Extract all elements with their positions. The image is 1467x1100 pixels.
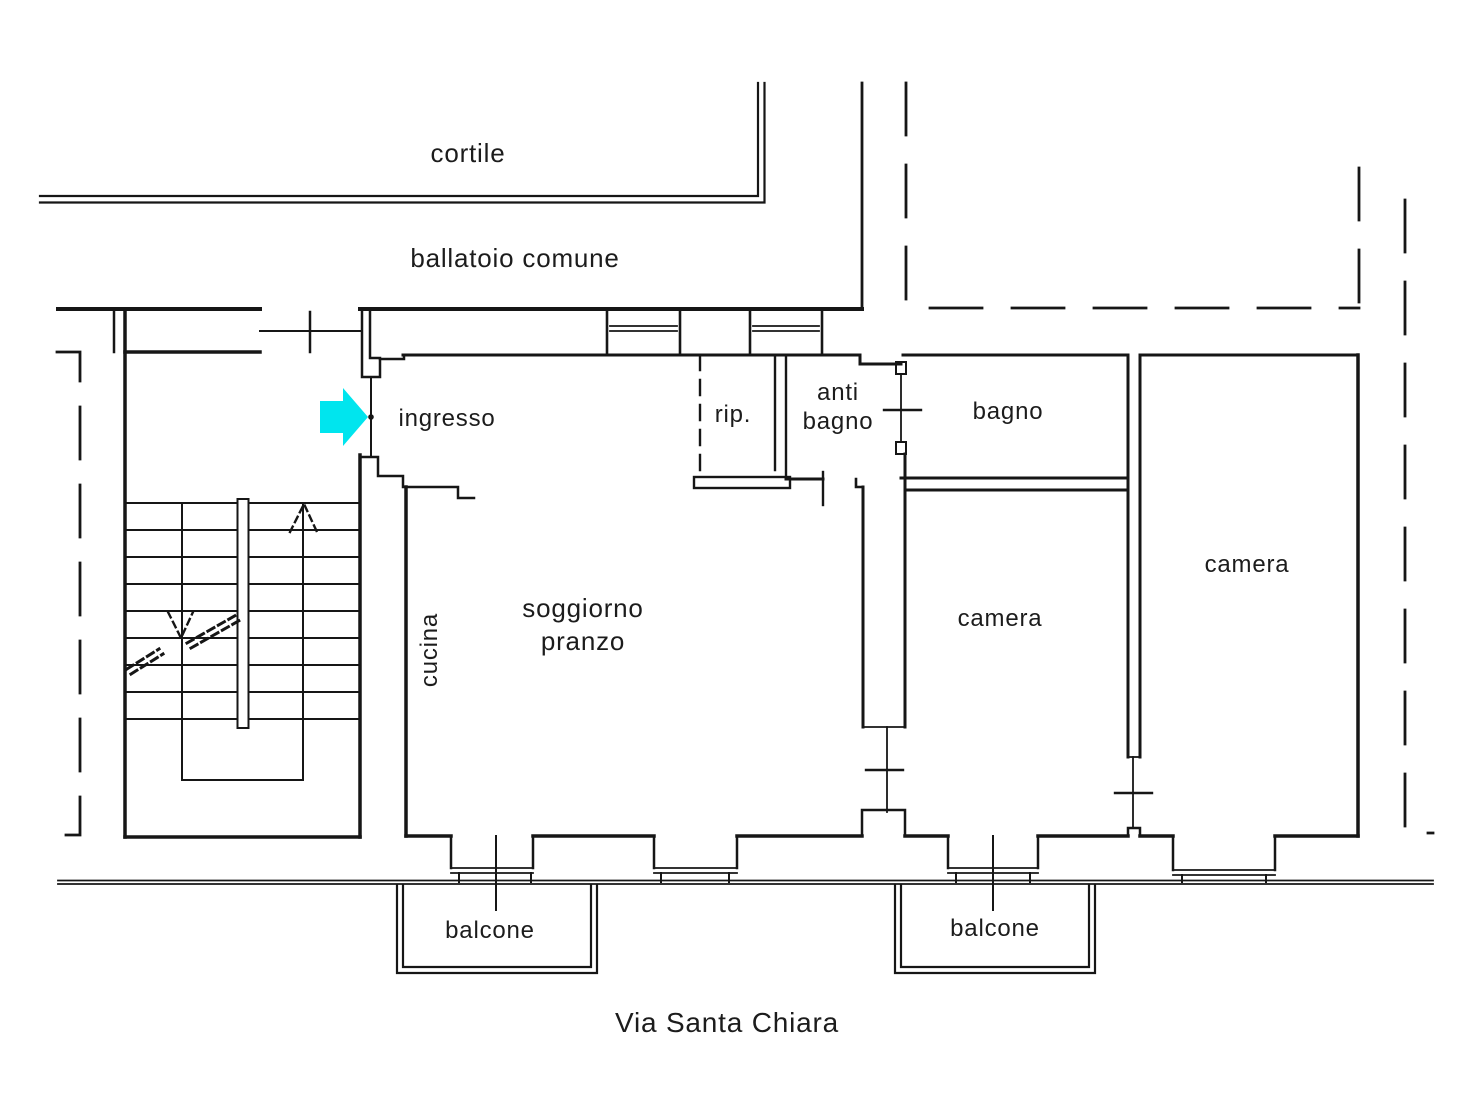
label-rip: rip. xyxy=(715,401,752,428)
entrance xyxy=(320,309,474,498)
room-labels: cortile ballatoio comune ingresso rip. a… xyxy=(398,138,1289,1038)
label-camera-middle: camera xyxy=(958,605,1043,632)
camera-right-room xyxy=(1140,355,1358,836)
label-cortile: cortile xyxy=(431,138,506,168)
entrance-arrow-icon xyxy=(320,388,368,446)
label-ingresso: ingresso xyxy=(398,405,495,432)
label-cucina: cucina xyxy=(416,613,443,687)
south-wall-openings xyxy=(406,836,1358,910)
stairwell xyxy=(125,309,360,837)
camera-middle-room xyxy=(905,355,1152,836)
stair-steps xyxy=(125,499,360,780)
cortile-walls xyxy=(40,83,862,309)
label-anti-bagno-line2: bagno xyxy=(803,408,874,435)
label-bagno: bagno xyxy=(973,398,1044,425)
label-balcone-right: balcone xyxy=(950,915,1040,942)
floor-plan-canvas: cortile ballatoio comune ingresso rip. a… xyxy=(0,0,1467,1100)
label-soggiorno-line1: soggiorno xyxy=(522,593,643,623)
window-glazing-lines xyxy=(610,326,819,331)
soggiorno-camera-wall xyxy=(862,487,905,836)
facade-line xyxy=(58,881,1433,885)
label-via-santa-chiara: Via Santa Chiara xyxy=(615,1007,839,1038)
stair-down-arrow-icon xyxy=(168,612,193,638)
label-camera-right: camera xyxy=(1205,551,1290,578)
entrance-door-hinge xyxy=(368,414,374,420)
stair-stringer xyxy=(238,499,249,728)
floor-plan-page: cortile ballatoio comune ingresso rip. a… xyxy=(0,0,1467,1100)
north-wall-windows xyxy=(403,309,901,364)
label-soggiorno-line2: pranzo xyxy=(541,626,625,656)
label-ballatoio-comune: ballatoio comune xyxy=(410,243,619,273)
label-balcone-left: balcone xyxy=(445,917,535,944)
north-exterior-wall xyxy=(58,309,862,352)
label-anti-bagno-line1: anti xyxy=(817,379,859,406)
